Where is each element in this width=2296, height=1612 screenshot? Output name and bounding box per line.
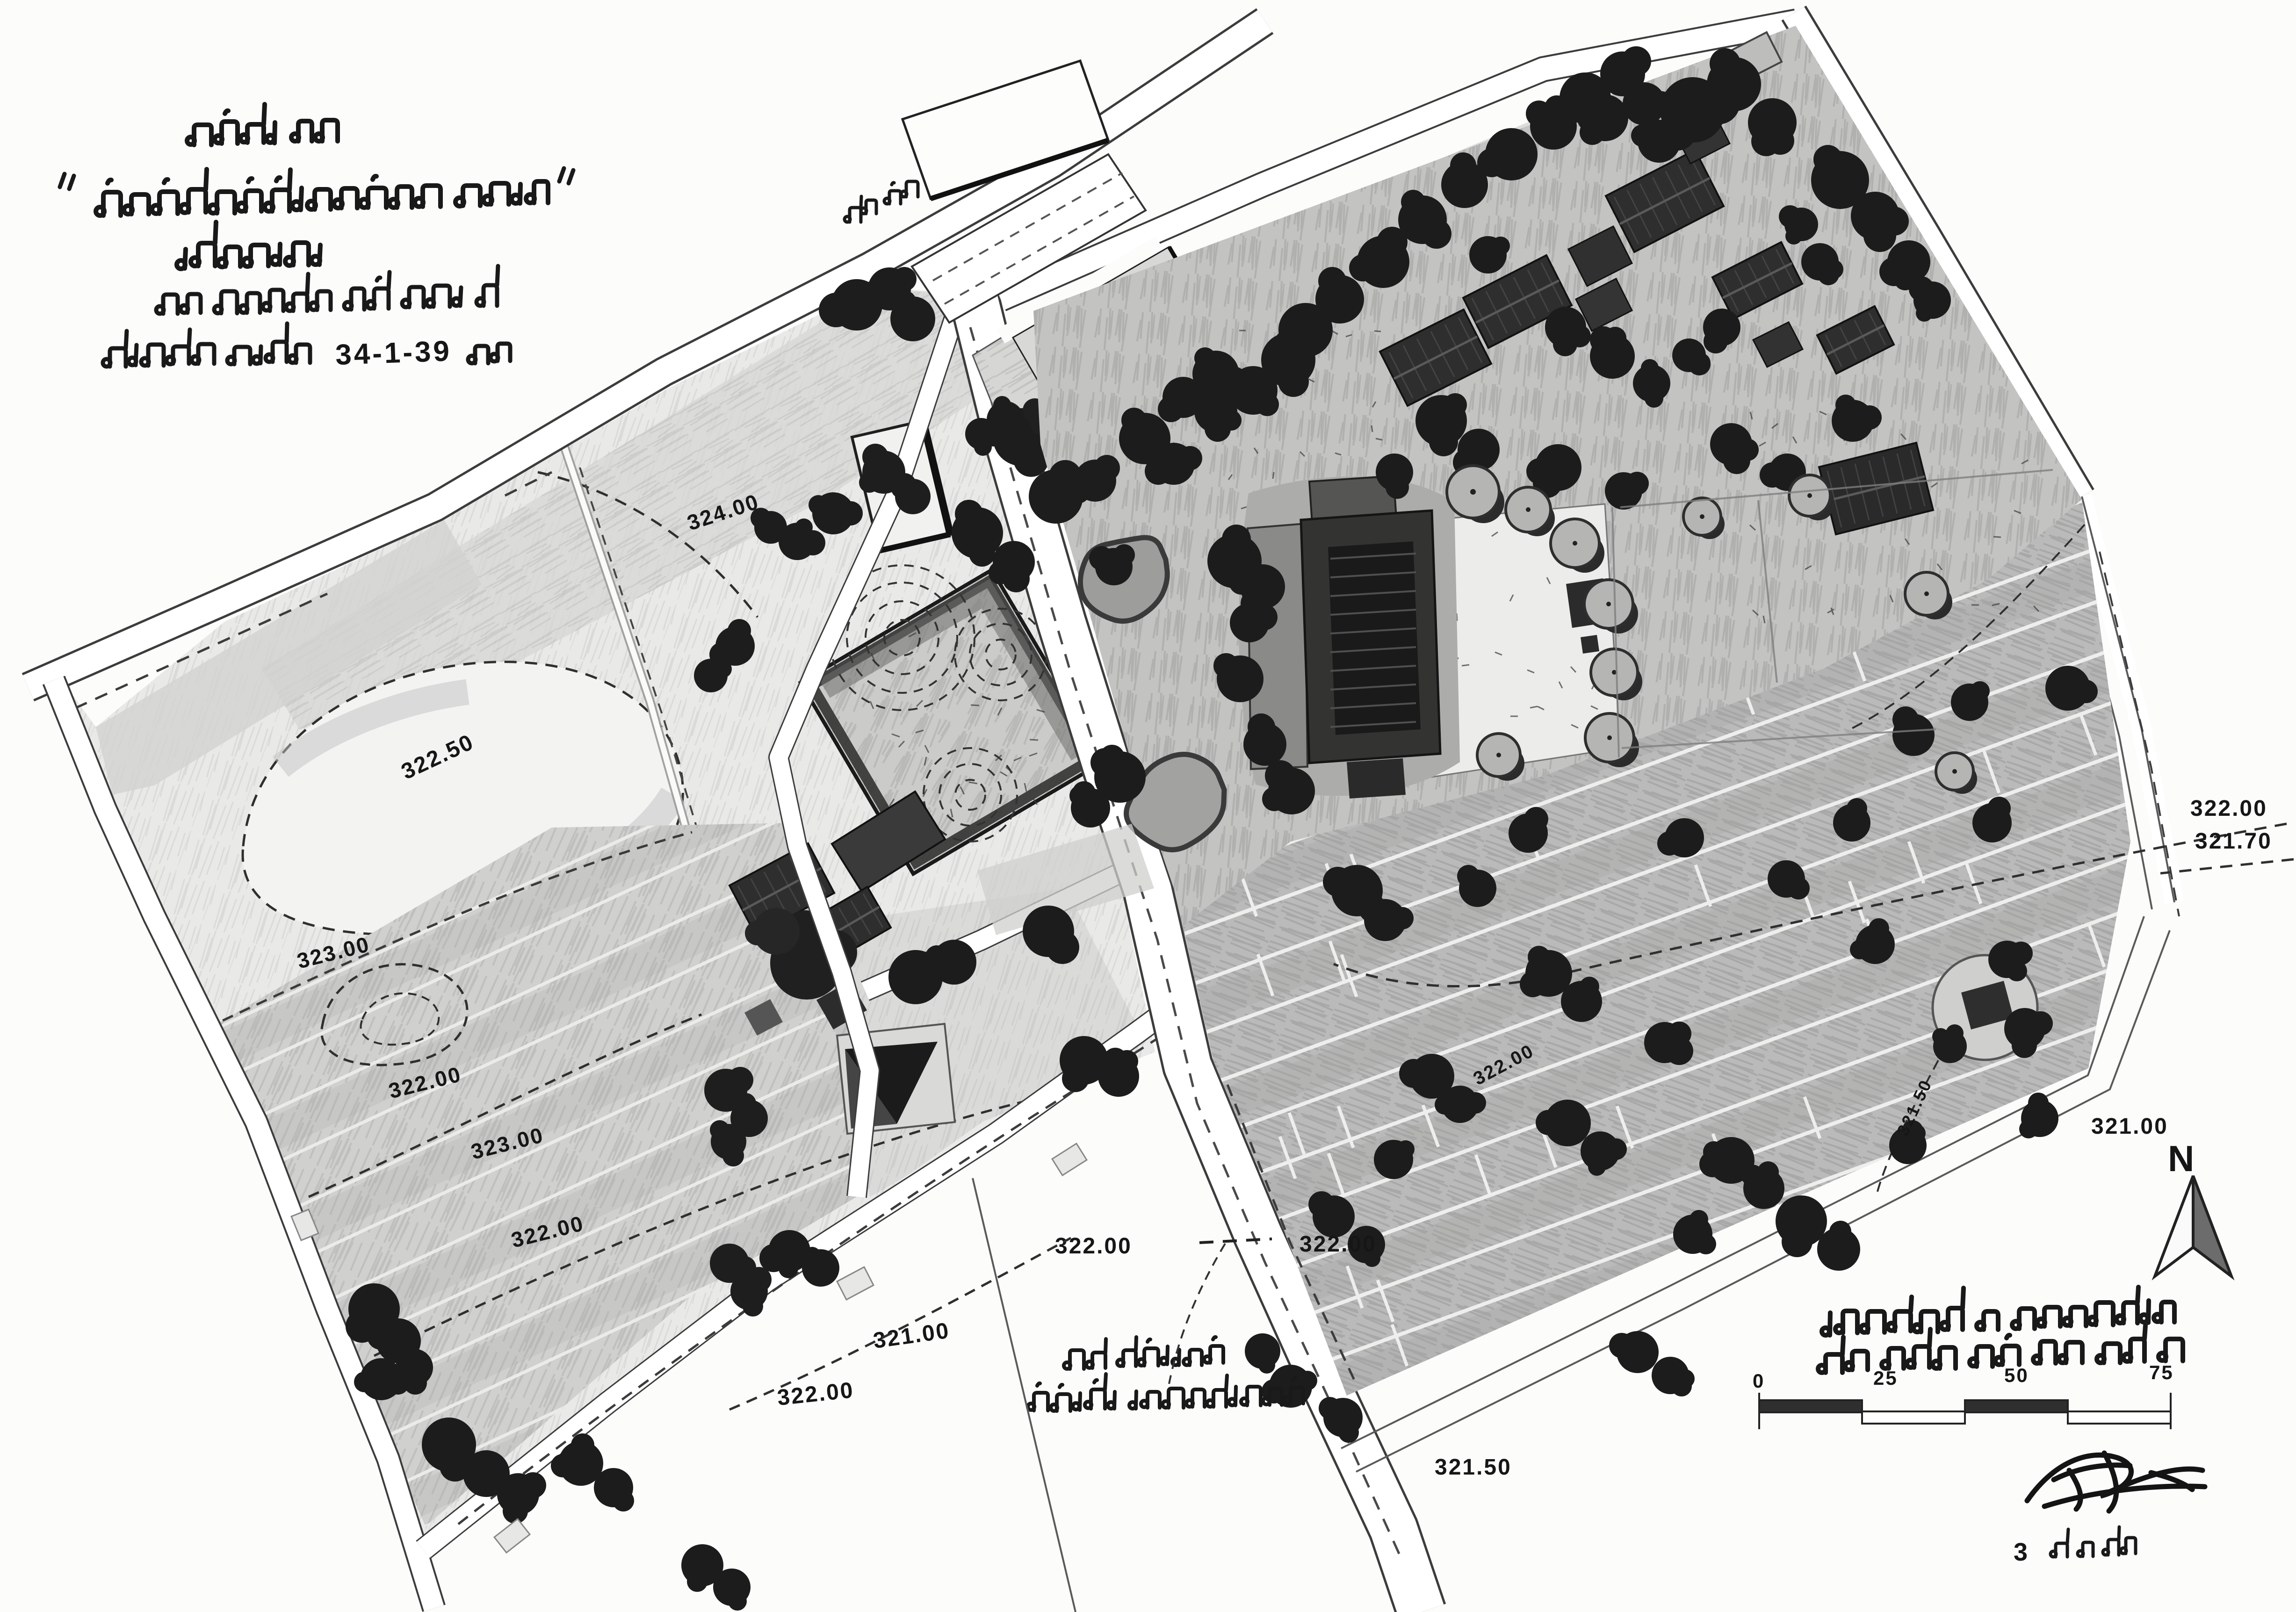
svg-text:321.00: 321.00 xyxy=(2091,1114,2168,1139)
svg-text:N: N xyxy=(2168,1138,2195,1179)
svg-text:50: 50 xyxy=(2004,1364,2029,1386)
svg-text:25: 25 xyxy=(1873,1367,1898,1389)
svg-text:322.00: 322.00 xyxy=(1055,1234,1132,1259)
svg-text:34-1-39: 34-1-39 xyxy=(335,335,452,371)
svg-text:0: 0 xyxy=(1753,1370,1765,1392)
svg-text:322.00: 322.00 xyxy=(2190,796,2267,821)
svg-text:322.00: 322.00 xyxy=(1300,1232,1377,1257)
svg-text:3: 3 xyxy=(2014,1538,2029,1566)
svg-text:321.50: 321.50 xyxy=(1435,1455,1512,1480)
svg-text:321.70: 321.70 xyxy=(2195,829,2272,854)
svg-text:75: 75 xyxy=(2149,1361,2174,1383)
